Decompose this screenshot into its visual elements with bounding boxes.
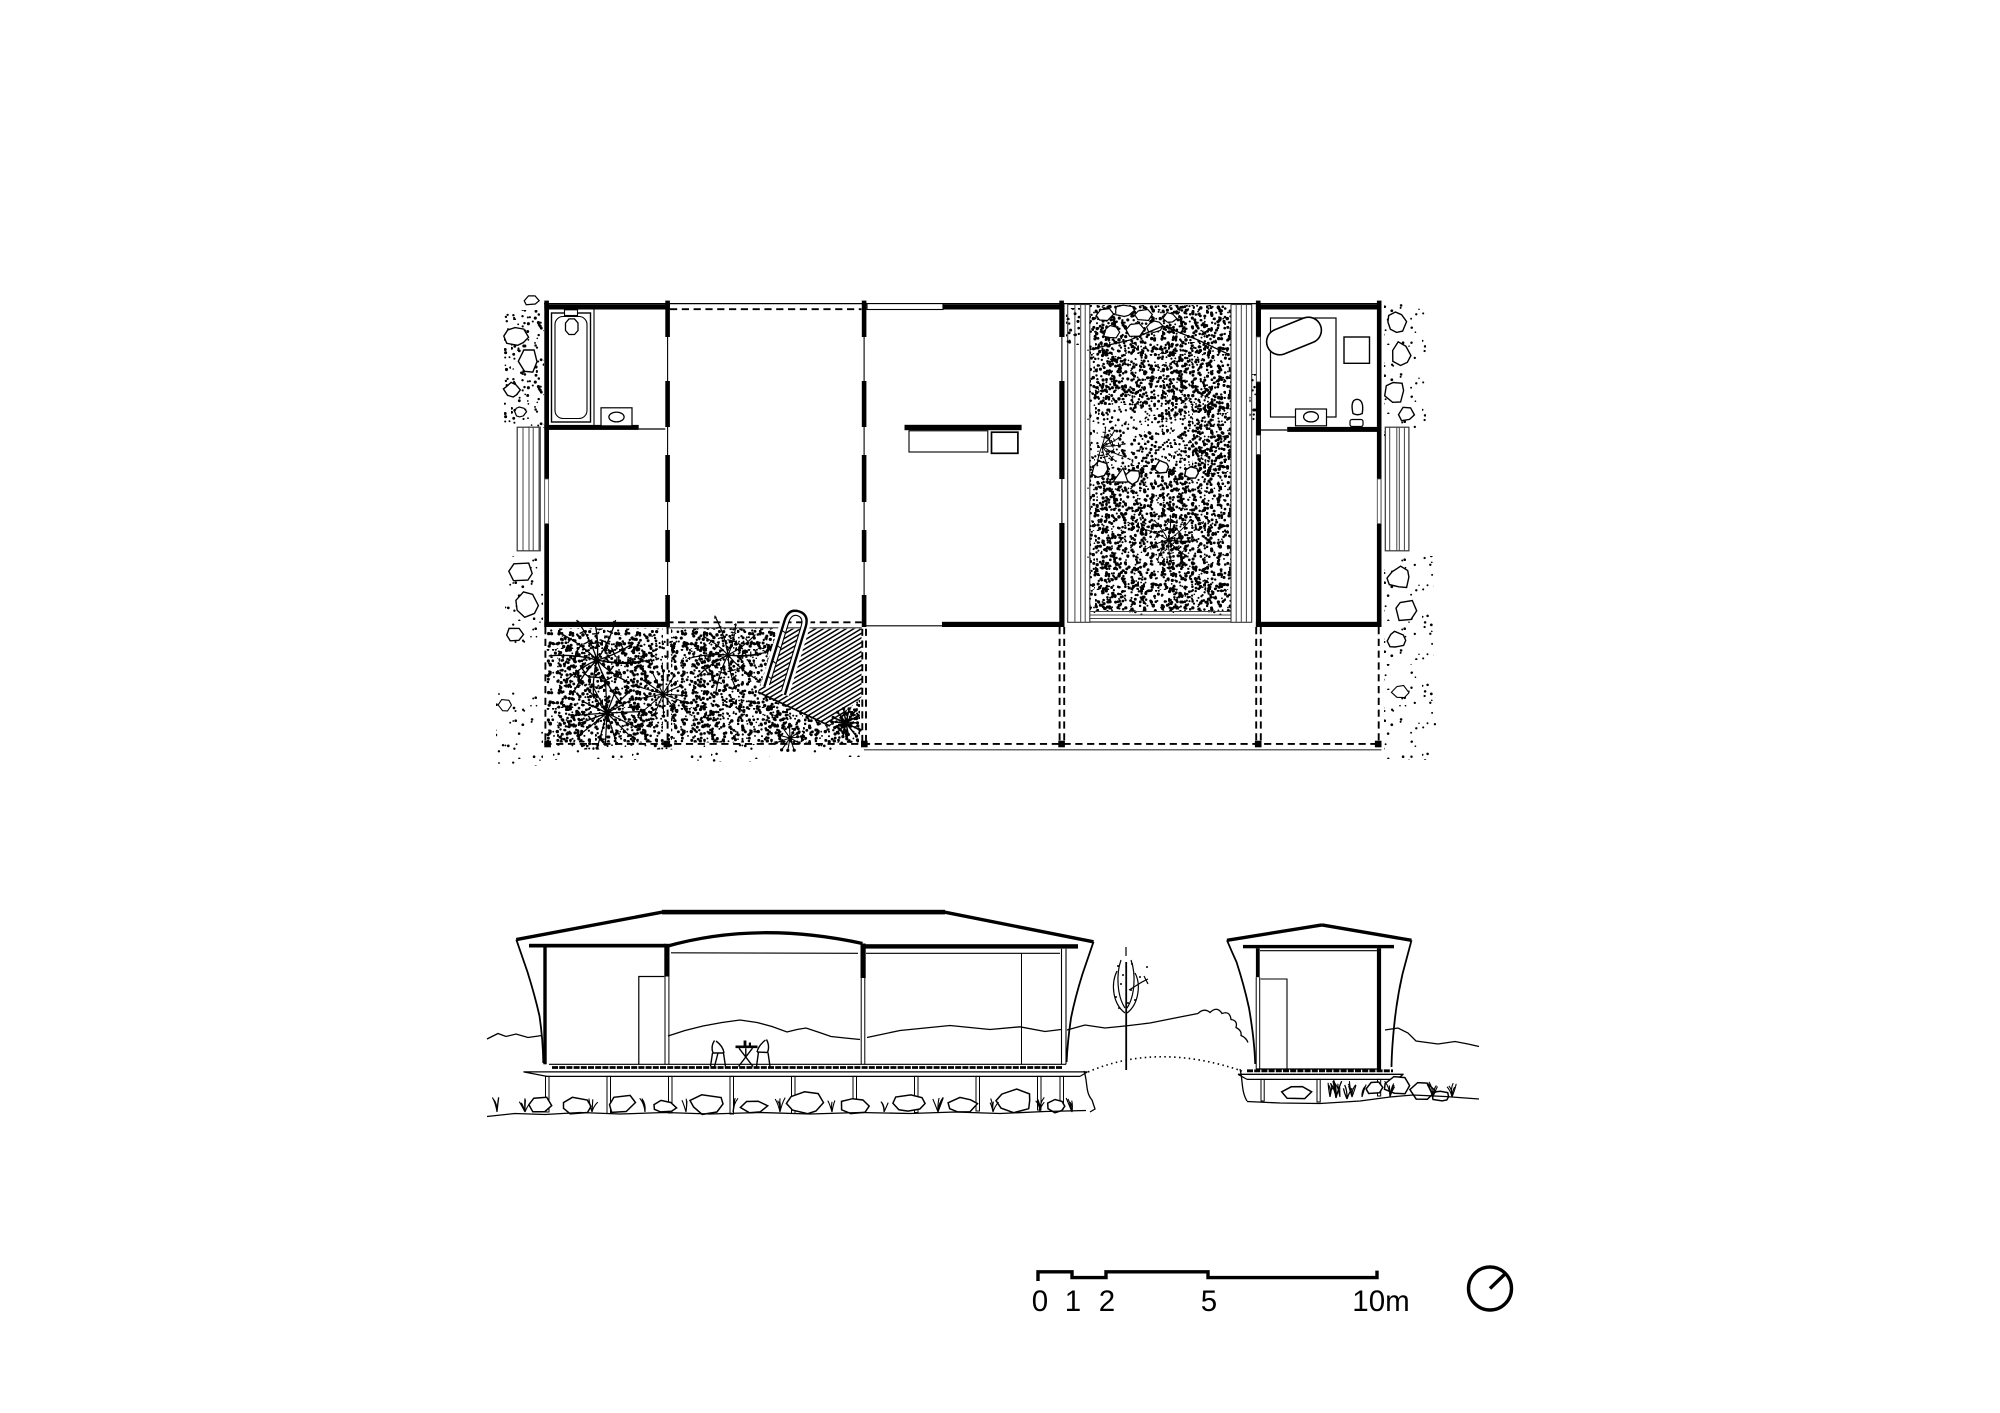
svg-text:0: 0 [1032, 1285, 1048, 1318]
svg-text:5: 5 [1201, 1285, 1217, 1318]
svg-text:2: 2 [1099, 1285, 1115, 1318]
svg-text:1: 1 [1065, 1285, 1081, 1318]
svg-text:10m: 10m [1352, 1285, 1409, 1318]
